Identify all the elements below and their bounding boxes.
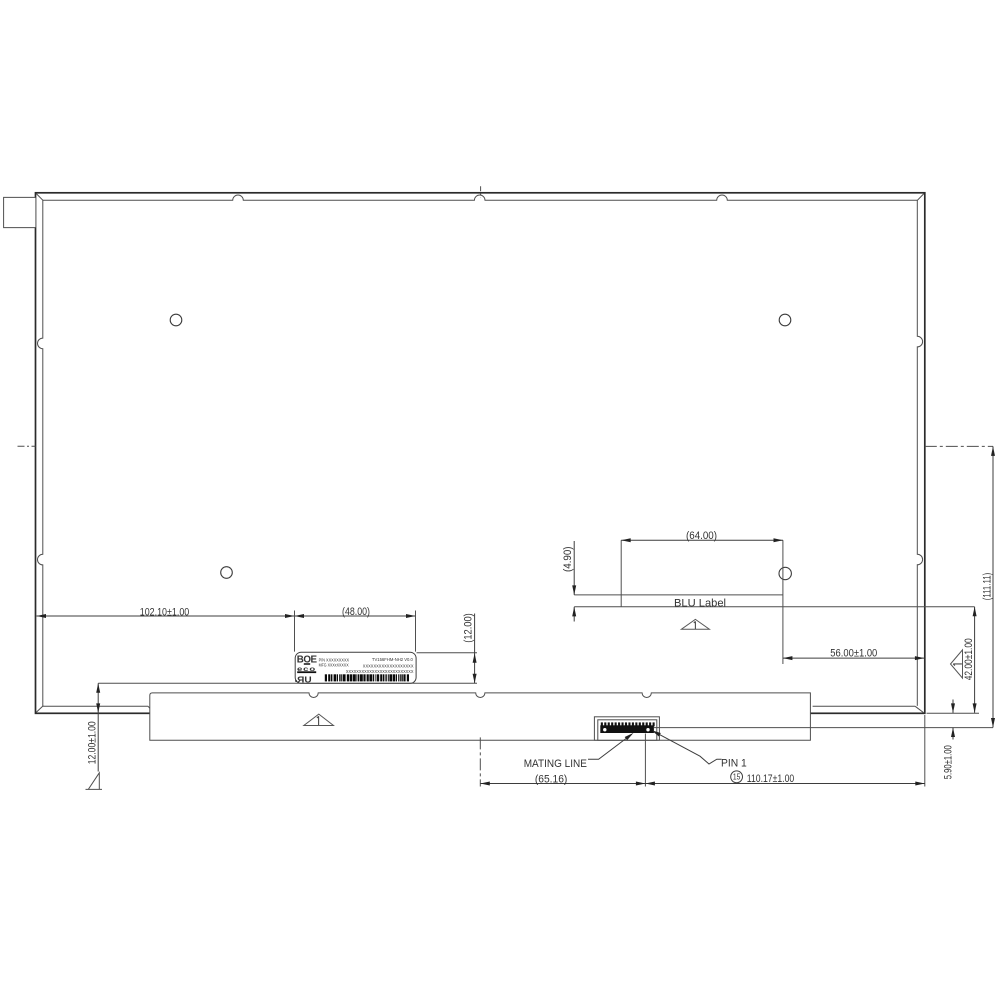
svg-text:15: 15 [733, 773, 741, 782]
svg-text:(12.00): (12.00) [463, 613, 475, 643]
svg-text:(111.11): (111.11) [981, 573, 993, 601]
svg-text:TV156FHM-NH2 V0.0: TV156FHM-NH2 V0.0 [372, 657, 413, 662]
svg-text:PIN 1: PIN 1 [721, 757, 747, 769]
svg-text:12.00±1.00: 12.00±1.00 [87, 721, 99, 764]
svg-text:(64.00): (64.00) [686, 530, 717, 542]
svg-text:MATING LINE: MATING LINE [524, 758, 587, 770]
svg-text:5.90±1.00: 5.90±1.00 [942, 745, 954, 779]
svg-text:42.00±1.00: 42.00±1.00 [963, 638, 975, 680]
svg-text:56.00±1.00: 56.00±1.00 [830, 647, 877, 659]
svg-text:(65.16): (65.16) [535, 774, 568, 786]
svg-text:102.10±1.00: 102.10±1.00 [140, 606, 190, 618]
svg-text:110.17±1.00: 110.17±1.00 [747, 773, 794, 785]
svg-text:(4.90): (4.90) [562, 546, 574, 572]
svg-text:(48.00): (48.00) [342, 606, 370, 618]
svg-text:BLU Label: BLU Label [674, 597, 726, 609]
svg-text:XXXXXXXXXXXXXXXXXXXXXXXXXX: XXXXXXXXXXXXXXXXXXXXXXXXXX [346, 669, 414, 674]
svg-text:MFG XXXxXXXXX: MFG XXXxXXXXX [319, 662, 349, 667]
svg-text:XXXXXXXXXXXXXXXXXXX: XXXXXXXXXXXXXXXXXXX [363, 664, 414, 669]
